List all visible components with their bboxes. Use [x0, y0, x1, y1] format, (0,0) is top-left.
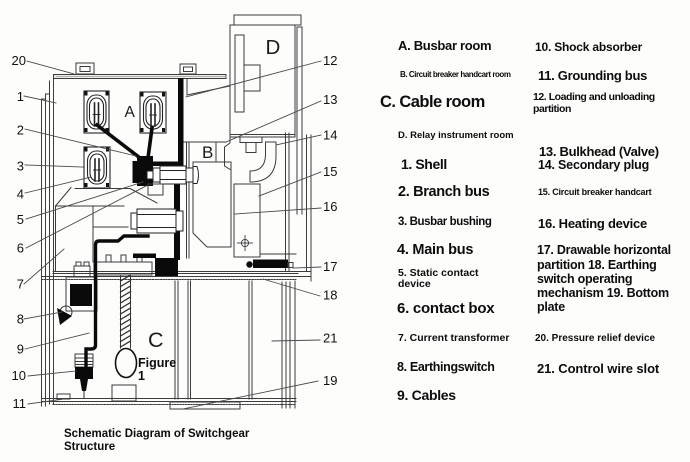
- svg-text:21: 21: [323, 331, 337, 346]
- svg-text:1: 1: [17, 89, 24, 104]
- svg-text:12: 12: [323, 53, 337, 68]
- svg-text:6: 6: [17, 241, 24, 256]
- svg-text:2: 2: [17, 123, 24, 138]
- svg-text:20: 20: [12, 53, 26, 68]
- svg-text:15: 15: [323, 164, 337, 179]
- svg-text:19: 19: [323, 373, 337, 388]
- svg-text:D: D: [266, 36, 281, 59]
- svg-text:13: 13: [323, 92, 337, 107]
- svg-text:C: C: [148, 328, 164, 352]
- svg-text:10: 10: [12, 368, 26, 383]
- svg-text:B: B: [202, 143, 213, 162]
- svg-text:9: 9: [17, 342, 24, 357]
- svg-text:7: 7: [17, 277, 24, 292]
- svg-text:8: 8: [17, 312, 24, 327]
- svg-text:Figure: Figure: [138, 356, 176, 370]
- svg-text:18: 18: [323, 288, 337, 303]
- svg-text:3: 3: [17, 159, 24, 174]
- svg-text:17: 17: [323, 259, 337, 274]
- svg-text:4: 4: [17, 187, 24, 202]
- svg-text:16: 16: [323, 199, 337, 214]
- svg-text:5: 5: [17, 212, 24, 227]
- svg-text:11: 11: [13, 396, 27, 411]
- svg-text:14: 14: [323, 128, 337, 143]
- svg-text:A: A: [125, 104, 136, 121]
- svg-text:1: 1: [138, 369, 145, 383]
